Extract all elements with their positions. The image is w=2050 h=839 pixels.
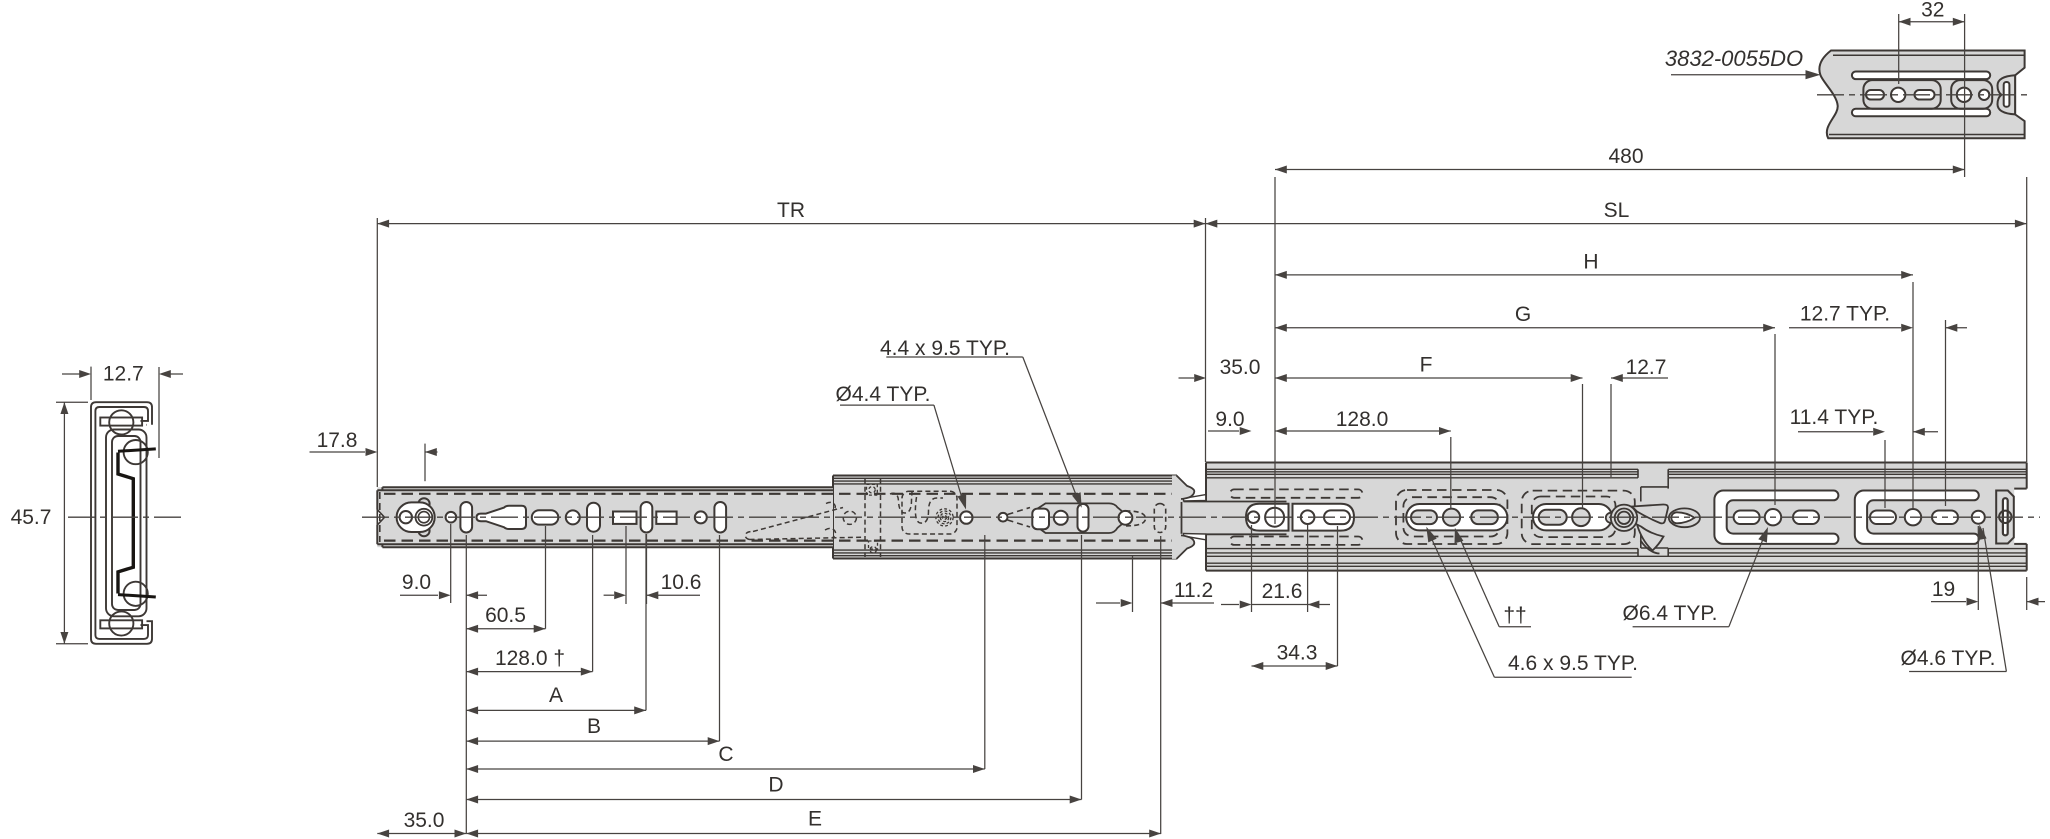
svg-text:12.7: 12.7 bbox=[1626, 356, 1667, 379]
svg-text:G: G bbox=[1515, 303, 1531, 326]
svg-text:35.0: 35.0 bbox=[1220, 356, 1261, 379]
svg-text:E: E bbox=[808, 808, 822, 831]
svg-text:480: 480 bbox=[1608, 145, 1643, 168]
svg-text:12.7: 12.7 bbox=[103, 363, 144, 386]
svg-text:17.8: 17.8 bbox=[317, 429, 358, 452]
svg-text:4.6 x 9.5 TYP.: 4.6 x 9.5 TYP. bbox=[1508, 652, 1638, 675]
svg-text:19: 19 bbox=[1932, 578, 1955, 601]
svg-text:10.6: 10.6 bbox=[661, 571, 702, 594]
svg-text:F: F bbox=[1420, 354, 1433, 377]
svg-text:21.6: 21.6 bbox=[1262, 580, 1303, 603]
svg-text:TR: TR bbox=[777, 199, 805, 222]
svg-text:3832-0055DO: 3832-0055DO bbox=[1665, 46, 1803, 71]
svg-text:Ø6.4 TYP.: Ø6.4 TYP. bbox=[1623, 602, 1718, 625]
svg-text:Ø4.4 TYP.: Ø4.4 TYP. bbox=[836, 383, 931, 406]
svg-text:45.7: 45.7 bbox=[11, 506, 52, 529]
svg-text:11.4 TYP.: 11.4 TYP. bbox=[1790, 406, 1879, 429]
svg-text:60.5: 60.5 bbox=[485, 604, 526, 627]
svg-text:35.0: 35.0 bbox=[404, 809, 445, 832]
svg-text:H: H bbox=[1583, 251, 1598, 274]
svg-text:D: D bbox=[768, 774, 783, 797]
svg-text:SL: SL bbox=[1604, 199, 1630, 222]
svg-text:9.0: 9.0 bbox=[402, 571, 431, 594]
svg-text:Ø4.6 TYP.: Ø4.6 TYP. bbox=[1901, 647, 1996, 670]
svg-text:34.3: 34.3 bbox=[1277, 642, 1318, 665]
svg-text:B: B bbox=[587, 715, 601, 738]
svg-text:128.0 †: 128.0 † bbox=[495, 647, 565, 670]
svg-text:C: C bbox=[718, 743, 733, 766]
svg-text:A: A bbox=[549, 684, 563, 707]
svg-text:††: †† bbox=[1503, 604, 1526, 627]
svg-text:12.7 TYP.: 12.7 TYP. bbox=[1800, 303, 1890, 326]
svg-text:128.0: 128.0 bbox=[1336, 408, 1389, 431]
svg-text:9.0: 9.0 bbox=[1215, 408, 1244, 431]
svg-text:32: 32 bbox=[1921, 0, 1944, 22]
svg-text:11.2: 11.2 bbox=[1174, 579, 1213, 602]
